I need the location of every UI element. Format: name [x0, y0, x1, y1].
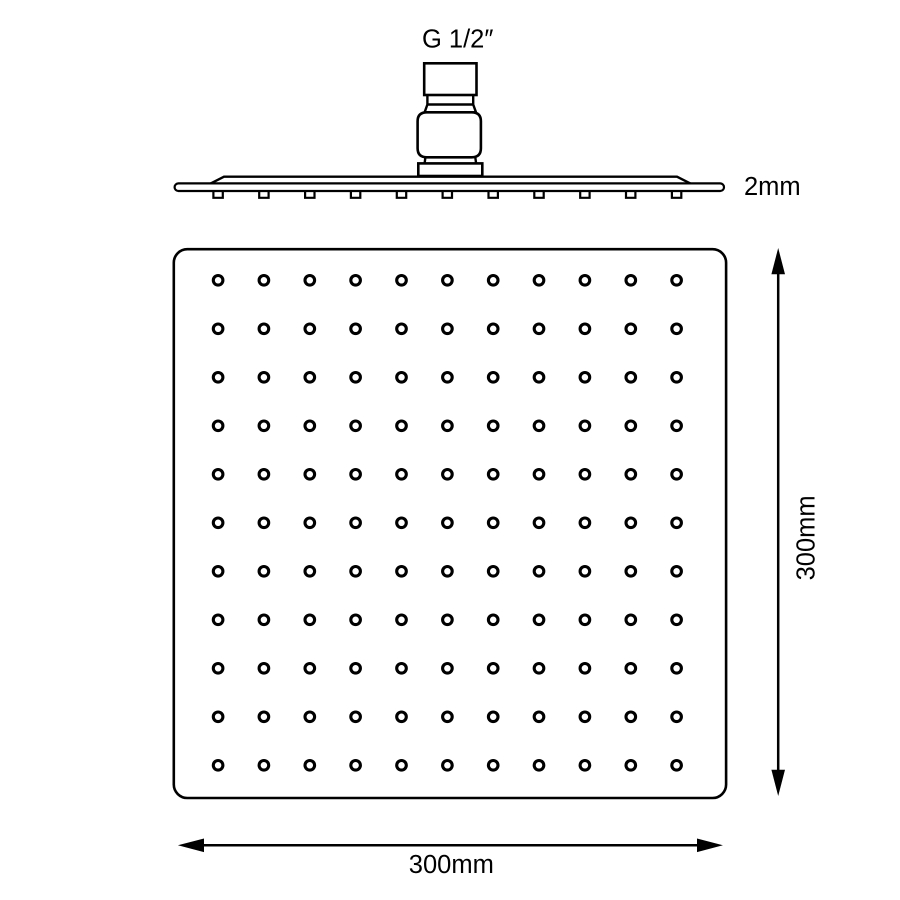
svg-text:G 1/2″: G 1/2″ [422, 26, 493, 54]
svg-text:2mm: 2mm [744, 173, 801, 201]
svg-text:300mm: 300mm [793, 495, 821, 580]
svg-text:300mm: 300mm [409, 851, 494, 879]
